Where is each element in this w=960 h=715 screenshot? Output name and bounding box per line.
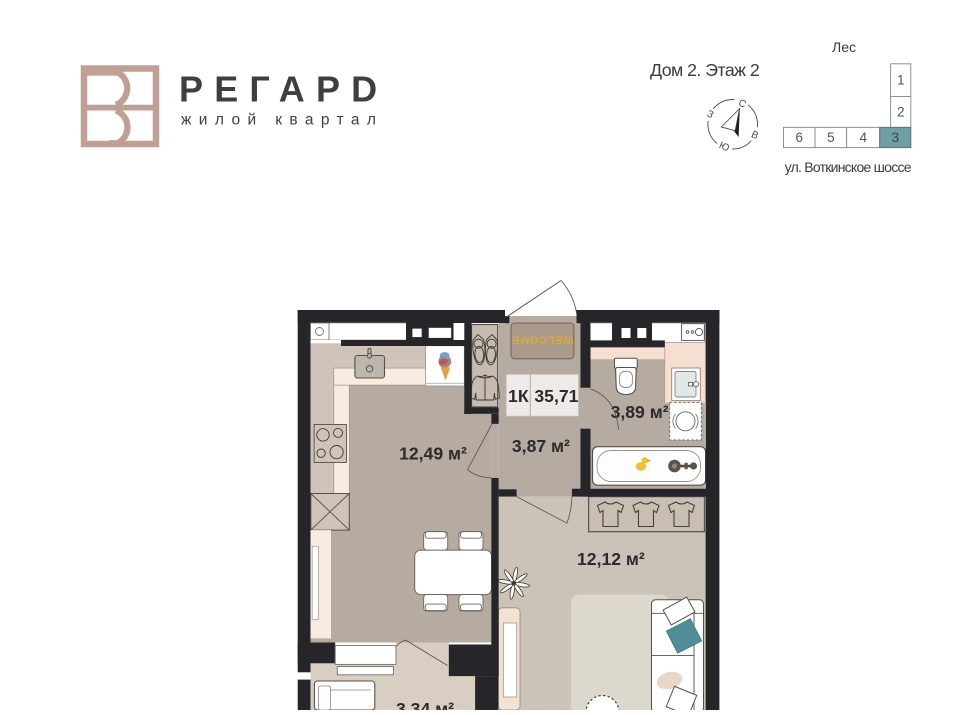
svg-text:4: 4 — [859, 130, 867, 145]
svg-text:12,12 м²: 12,12 м² — [577, 549, 645, 569]
svg-text:Лес: Лес — [832, 39, 856, 55]
svg-text:3,89 м²: 3,89 м² — [611, 402, 669, 422]
svg-text:WELCOME: WELCOME — [511, 334, 573, 346]
svg-text:35,71: 35,71 — [534, 386, 578, 406]
svg-text:Дом 2. Этаж 2: Дом 2. Этаж 2 — [650, 60, 759, 80]
svg-text:6: 6 — [796, 130, 804, 145]
svg-text:1: 1 — [897, 73, 905, 88]
svg-text:12,49 м²: 12,49 м² — [399, 444, 467, 464]
svg-text:3: 3 — [891, 130, 899, 145]
svg-text:5: 5 — [827, 130, 835, 145]
svg-text:жилой квартал: жилой квартал — [181, 112, 383, 129]
svg-text:3,87 м²: 3,87 м² — [512, 436, 570, 456]
svg-text:РЕГАРD: РЕГАРD — [179, 69, 388, 110]
svg-text:1К: 1К — [508, 386, 529, 406]
svg-text:2: 2 — [897, 105, 905, 120]
svg-text:3,34 м²: 3,34 м² — [396, 699, 454, 710]
svg-text:ул. Воткинское шоссе: ул. Воткинское шоссе — [785, 159, 912, 175]
